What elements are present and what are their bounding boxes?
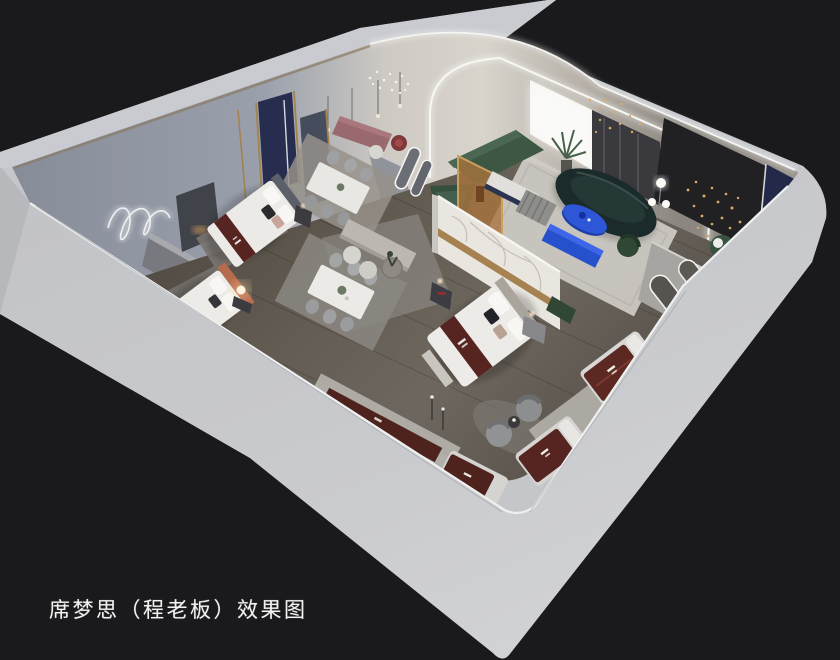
round-side-table [369,145,383,159]
render-canvas: 席梦思（程老板）效果图 [0,0,840,660]
caption-text: 席梦思（程老板）效果图 [49,594,308,624]
burgundy-chair-cushion [395,139,403,147]
armchair-white-2 [359,261,377,279]
showroom-3d-render [0,0,840,660]
lounge-side-table [508,416,520,428]
armchair-white-1 [343,246,361,264]
